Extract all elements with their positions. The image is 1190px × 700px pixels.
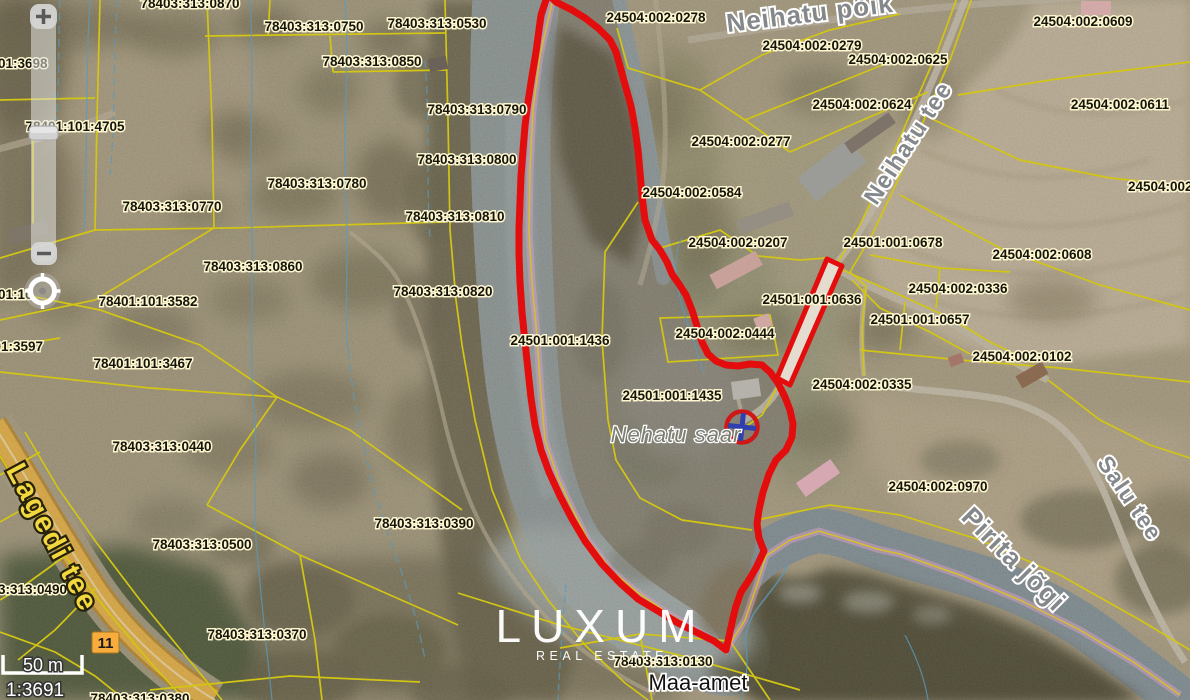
svg-text:78403:313:0780: 78403:313:0780 [267, 176, 366, 191]
svg-text:3:313:0490: 3:313:0490 [0, 582, 67, 597]
svg-text:24504:002:0609: 24504:002:0609 [1033, 14, 1132, 29]
svg-text:24504:002:0970: 24504:002:0970 [888, 479, 987, 494]
svg-text:1:3691: 1:3691 [6, 680, 64, 700]
svg-text:78403:313:0370: 78403:313:0370 [207, 627, 306, 642]
svg-text:101:3597: 101:3597 [0, 339, 43, 354]
svg-text:78403:313:0860: 78403:313:0860 [203, 259, 302, 274]
svg-text:24504:002:0584: 24504:002:0584 [642, 185, 742, 200]
svg-text:78401:101:3582: 78401:101:3582 [98, 294, 197, 309]
svg-text:Maa-amet: Maa-amet [648, 670, 747, 695]
svg-text:78403:313:0850: 78403:313:0850 [322, 54, 421, 69]
svg-text:78403:313:0380: 78403:313:0380 [90, 691, 189, 700]
svg-text:24501:001:0657: 24501:001:0657 [870, 312, 969, 327]
svg-text:24504:002:0102: 24504:002:0102 [972, 349, 1071, 364]
svg-text:11: 11 [98, 635, 114, 652]
svg-text:24504:002:0207: 24504:002:0207 [688, 235, 787, 250]
svg-text:24504:002:0336: 24504:002:0336 [908, 281, 1008, 296]
svg-text:24504:002:0624: 24504:002:0624 [812, 97, 912, 112]
svg-text:24504:002:0611: 24504:002:0611 [1071, 97, 1170, 112]
svg-text:78403:313:0800: 78403:313:0800 [417, 152, 516, 167]
svg-text:24501:001:0678: 24501:001:0678 [843, 235, 943, 250]
svg-text:24501:001:0636: 24501:001:0636 [762, 292, 862, 307]
svg-text:78403:313:0500: 78403:313:0500 [152, 537, 251, 552]
svg-text:78403:313:0810: 78403:313:0810 [405, 209, 504, 224]
svg-text:24504:002:06: 24504:002:06 [1128, 179, 1190, 194]
svg-text:24504:002:0335: 24504:002:0335 [812, 377, 912, 392]
svg-text:78403:313:0440: 78403:313:0440 [112, 439, 211, 454]
svg-text:24501:001:1436: 24501:001:1436 [510, 333, 610, 348]
svg-text:24504:002:0279: 24504:002:0279 [762, 38, 861, 53]
svg-text:78403:313:0530: 78403:313:0530 [387, 16, 486, 31]
svg-text:78403:313:0750: 78403:313:0750 [264, 19, 363, 34]
svg-text:24504:002:0625: 24504:002:0625 [848, 52, 948, 67]
svg-text:24504:002:0444: 24504:002:0444 [675, 326, 775, 341]
svg-text:78403:313:0770: 78403:313:0770 [122, 199, 221, 214]
svg-text:78403:313:0790: 78403:313:0790 [427, 102, 526, 117]
svg-text:24504:002:0278: 24504:002:0278 [606, 10, 706, 25]
svg-text:78403:313:0870: 78403:313:0870 [140, 0, 239, 11]
svg-text:50 m: 50 m [23, 655, 63, 675]
svg-text:78403:313:0820: 78403:313:0820 [393, 284, 492, 299]
svg-text:78403:313:0390: 78403:313:0390 [374, 516, 473, 531]
svg-text:78401:101:3467: 78401:101:3467 [93, 356, 192, 371]
svg-text:24504:002:0277: 24504:002:0277 [691, 134, 790, 149]
svg-text:REAL ESTATE: REAL ESTATE [536, 649, 668, 663]
svg-text:LUXUM: LUXUM [495, 600, 706, 652]
svg-text:24501:001:1435: 24501:001:1435 [622, 388, 722, 403]
svg-text:24504:002:0608: 24504:002:0608 [992, 247, 1092, 262]
svg-text:Nehatu saar: Nehatu saar [611, 422, 743, 447]
